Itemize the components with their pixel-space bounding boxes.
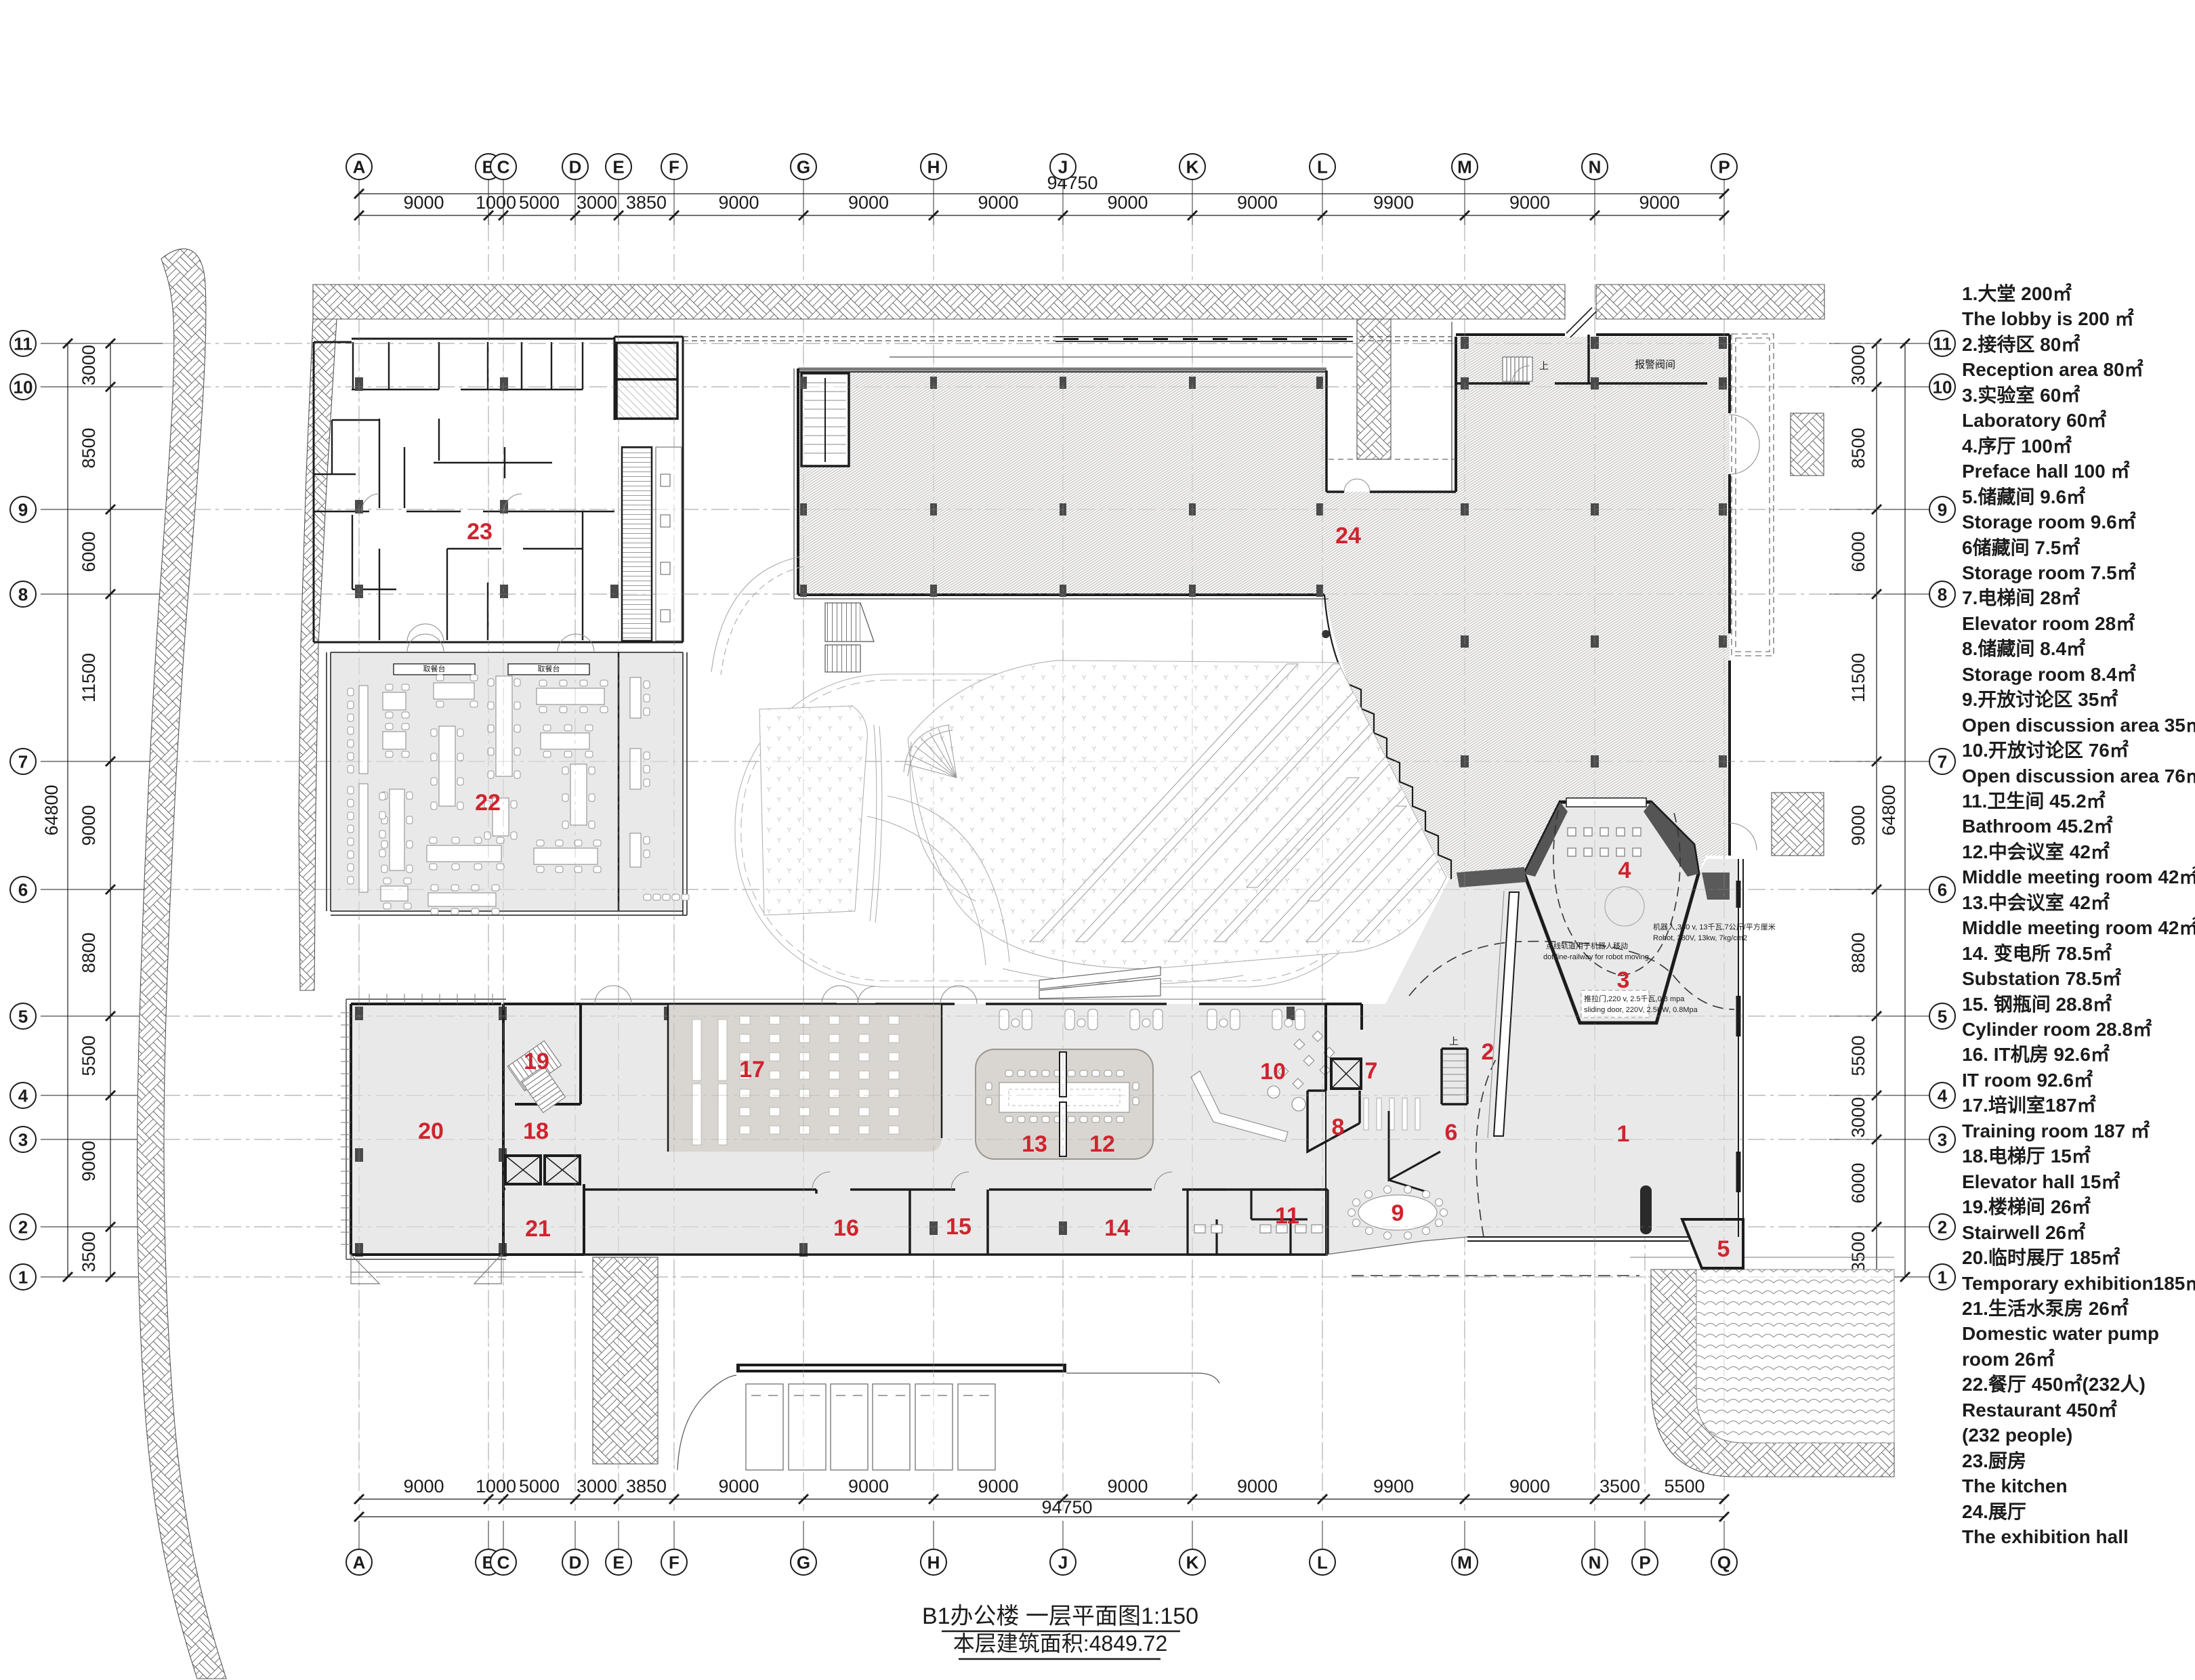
svg-text:9: 9 [1392,1200,1404,1226]
svg-text:64800: 64800 [1879,784,1899,835]
svg-text:Middle meeting room 42㎡: Middle meeting room 42㎡ [1962,866,2195,887]
svg-text:5500: 5500 [1848,1035,1868,1076]
svg-text:9: 9 [1938,499,1947,520]
svg-text:6: 6 [18,879,28,900]
svg-text:5: 5 [18,1006,28,1026]
svg-text:7: 7 [1938,751,1947,772]
svg-text:11: 11 [1933,333,1952,354]
svg-text:13: 13 [1022,1131,1047,1157]
svg-text:M: M [1457,156,1472,177]
svg-text:本层建筑面积:4849.72: 本层建筑面积:4849.72 [953,1631,1168,1656]
svg-text:The lobby is 200 ㎡: The lobby is 200 ㎡ [1962,308,2134,329]
svg-text:18: 18 [523,1118,549,1144]
svg-text:9000: 9000 [79,1141,99,1181]
svg-text:4: 4 [1618,858,1631,883]
svg-text:20.临时展厅 185㎡: 20.临时展厅 185㎡ [1962,1246,2120,1268]
svg-text:17.培训室187㎡: 17.培训室187㎡ [1962,1094,2096,1116]
svg-text:2: 2 [18,1217,28,1237]
svg-text:11.卫生间 45.2㎡: 11.卫生间 45.2㎡ [1962,790,2106,812]
svg-text:2: 2 [1938,1217,1947,1237]
svg-text:K: K [1186,1552,1199,1572]
svg-text:J: J [1058,1552,1068,1572]
svg-text:A: A [353,156,366,177]
svg-text:14: 14 [1104,1215,1130,1241]
svg-text:Storage room 9.6㎡: Storage room 9.6㎡ [1962,511,2136,532]
svg-text:14. 变电所 78.5㎡: 14. 变电所 78.5㎡ [1962,942,2112,964]
svg-text:3000: 3000 [1848,1097,1868,1137]
svg-text:10: 10 [1933,377,1952,397]
svg-text:1000: 1000 [476,192,516,213]
svg-text:F: F [669,156,680,177]
svg-text:Training room 187 ㎡: Training room 187 ㎡ [1962,1120,2150,1141]
svg-text:8: 8 [1332,1114,1345,1140]
svg-text:9000: 9000 [848,192,889,213]
svg-text:Substation 78.5㎡: Substation 78.5㎡ [1962,967,2121,989]
svg-text:18.电梯厅 15㎡: 18.电梯厅 15㎡ [1962,1145,2091,1167]
svg-text:8: 8 [18,584,28,604]
svg-text:8.储藏间 8.4㎡: 8.储藏间 8.4㎡ [1962,637,2085,659]
svg-text:3000: 3000 [577,1476,617,1496]
svg-text:3500: 3500 [79,1232,99,1272]
svg-text:Elevator room 28㎡: Elevator room 28㎡ [1962,612,2135,634]
svg-text:The exhibition hall: The exhibition hall [1962,1526,2129,1547]
svg-text:Preface hall 100 ㎡: Preface hall 100 ㎡ [1962,460,2129,482]
svg-text:9000: 9000 [1848,805,1868,845]
svg-text:12.中会议室 42㎡: 12.中会议室 42㎡ [1962,841,2110,862]
svg-text:9000: 9000 [1107,1476,1148,1496]
svg-text:11500: 11500 [79,653,99,702]
svg-text:Storage room 8.4㎡: Storage room 8.4㎡ [1962,663,2136,685]
svg-text:K: K [1186,156,1199,177]
svg-text:F: F [669,1552,680,1572]
svg-text:19.楼梯间 26㎡: 19.楼梯间 26㎡ [1962,1196,2091,1217]
svg-text:9.开放讨论区 35㎡: 9.开放讨论区 35㎡ [1962,688,2118,710]
svg-text:16: 16 [833,1215,859,1241]
svg-text:D: D [569,156,582,177]
svg-text:Elevator hall 15㎡: Elevator hall 15㎡ [1962,1171,2120,1192]
svg-text:3500: 3500 [1848,1232,1868,1272]
svg-text:3000: 3000 [577,192,617,213]
svg-text:9000: 9000 [718,1476,759,1496]
svg-text:9000: 9000 [1237,1476,1278,1496]
svg-text:8500: 8500 [79,427,99,468]
svg-text:6000: 6000 [79,531,99,572]
svg-text:3500: 3500 [1600,1476,1640,1496]
svg-text:5500: 5500 [79,1035,99,1076]
svg-text:5: 5 [1938,1006,1947,1026]
svg-text:8500: 8500 [1848,427,1868,468]
svg-text:23.厨房: 23.厨房 [1962,1450,2026,1471]
svg-text:Bathroom 45.2㎡: Bathroom 45.2㎡ [1962,815,2113,837]
svg-text:4.序厅 100㎡: 4.序厅 100㎡ [1962,435,2072,457]
svg-text:Storage room 7.5㎡: Storage room 7.5㎡ [1962,562,2136,583]
svg-text:3: 3 [1938,1129,1947,1150]
svg-text:9000: 9000 [1509,192,1550,213]
svg-text:Cylinder room 28.8㎡: Cylinder room 28.8㎡ [1962,1018,2152,1040]
svg-text:Open discussion area 35㎡: Open discussion area 35㎡ [1962,714,2195,736]
svg-text:C: C [497,1552,510,1572]
svg-text:3000: 3000 [79,345,99,385]
svg-text:10: 10 [14,377,33,397]
svg-text:G: G [797,156,810,177]
svg-text:21.生活水泵房 26㎡: 21.生活水泵房 26㎡ [1962,1297,2129,1319]
svg-text:Reception area 80㎡: Reception area 80㎡ [1962,358,2144,380]
svg-text:20: 20 [418,1118,444,1144]
svg-text:9000: 9000 [848,1476,889,1496]
svg-text:1000: 1000 [476,1476,516,1496]
svg-text:4: 4 [1938,1085,1948,1106]
svg-text:取餐台: 取餐台 [423,664,446,673]
svg-text:4: 4 [18,1085,28,1106]
svg-text:64800: 64800 [41,784,62,835]
svg-text:9000: 9000 [403,192,444,213]
svg-text:Middle meeting room 42㎡: Middle meeting room 42㎡ [1962,917,2195,938]
svg-text:15. 钢瓶间 28.8㎡: 15. 钢瓶间 28.8㎡ [1962,993,2112,1015]
svg-text:13.中会议室 42㎡: 13.中会议室 42㎡ [1962,891,2110,913]
svg-text:24.展厅: 24.展厅 [1962,1501,2026,1522]
svg-text:9000: 9000 [79,805,99,845]
svg-text:D: D [569,1552,582,1572]
svg-text:5000: 5000 [519,1476,560,1496]
svg-text:2: 2 [1482,1039,1494,1065]
svg-text:11500: 11500 [1848,653,1868,702]
svg-text:19: 19 [524,1049,549,1074]
svg-text:C: C [497,156,510,177]
svg-text:Robot, 380V, 13kw, 7kg/cm2: Robot, 380V, 13kw, 7kg/cm2 [1653,934,1747,942]
svg-text:3: 3 [1617,967,1630,993]
svg-text:6储藏间 7.5㎡: 6储藏间 7.5㎡ [1962,537,2080,558]
svg-text:5: 5 [1717,1236,1730,1262]
svg-text:P: P [1718,156,1730,177]
svg-text:1: 1 [1938,1267,1947,1287]
svg-text:7: 7 [1365,1058,1378,1084]
svg-text:9900: 9900 [1373,1476,1414,1496]
svg-text:8: 8 [1938,584,1947,604]
svg-text:room 26㎡: room 26㎡ [1962,1348,2055,1370]
svg-text:L: L [1317,156,1328,177]
svg-text:报警阀间: 报警阀间 [1635,359,1675,371]
svg-text:G: G [797,1552,810,1572]
svg-text:上: 上 [1539,360,1549,371]
svg-text:点线轨道用于机器人移动: 点线轨道用于机器人移动 [1546,941,1628,950]
svg-text:5500: 5500 [1664,1476,1705,1496]
svg-text:L: L [1317,1552,1328,1572]
svg-text:1.大堂 200㎡: 1.大堂 200㎡ [1962,282,2072,304]
svg-text:9000: 9000 [1107,192,1148,213]
svg-text:Domestic water pump: Domestic water pump [1962,1323,2159,1344]
svg-text:11: 11 [14,333,33,354]
svg-text:5.储藏间 9.6㎡: 5.储藏间 9.6㎡ [1962,486,2085,507]
svg-text:3000: 3000 [1848,345,1868,385]
svg-text:3.实验室 60㎡: 3.实验室 60㎡ [1962,384,2080,406]
svg-text:Laboratory 60㎡: Laboratory 60㎡ [1962,409,2106,431]
svg-text:The kitchen: The kitchen [1962,1475,2068,1496]
svg-text:(232 people): (232 people) [1962,1425,2072,1446]
svg-text:机器人,380 v, 13千瓦,7公斤/平方厘米: 机器人,380 v, 13千瓦,7公斤/平方厘米 [1653,922,1776,931]
svg-text:9900: 9900 [1373,192,1414,213]
svg-text:取餐台: 取餐台 [538,664,560,673]
svg-text:1: 1 [1617,1121,1630,1147]
svg-text:9000: 9000 [403,1476,444,1496]
svg-text:6: 6 [1445,1120,1458,1146]
svg-text:E: E [612,156,624,177]
svg-text:9000: 9000 [978,1476,1018,1496]
svg-text:dot line-railway for robot mov: dot line-railway for robot moving [1543,953,1649,961]
svg-text:3: 3 [18,1129,28,1150]
svg-text:17: 17 [739,1057,765,1083]
svg-text:M: M [1457,1552,1472,1572]
svg-text:9000: 9000 [718,192,759,213]
svg-text:16. IT机房 92.6㎡: 16. IT机房 92.6㎡ [1962,1043,2110,1065]
svg-text:Temporary exhibition185㎡: Temporary exhibition185㎡ [1962,1272,2195,1294]
svg-text:推拉门,220 v, 2.5千瓦,0.8 mpa: 推拉门,220 v, 2.5千瓦,0.8 mpa [1584,994,1685,1003]
svg-text:J: J [1058,156,1068,177]
svg-text:Q: Q [1717,1552,1731,1572]
svg-text:8800: 8800 [79,932,99,973]
svg-text:sliding door, 220V, 2.5KW, 0.8: sliding door, 220V, 2.5KW, 0.8Mpa [1584,1006,1698,1014]
svg-text:E: E [612,1552,624,1572]
svg-text:22: 22 [475,790,501,816]
svg-text:9000: 9000 [1639,192,1679,213]
svg-text:N: N [1589,156,1602,177]
svg-text:N: N [1589,1552,1602,1572]
svg-text:Stairwell 26㎡: Stairwell 26㎡ [1962,1221,2085,1243]
svg-text:上: 上 [1449,1036,1459,1047]
svg-text:24: 24 [1335,523,1361,549]
svg-text:11: 11 [1275,1203,1299,1229]
svg-text:21: 21 [525,1216,551,1242]
svg-text:9000: 9000 [1509,1476,1550,1496]
svg-text:8800: 8800 [1848,932,1868,973]
svg-text:3850: 3850 [626,192,667,213]
svg-text:5000: 5000 [519,192,560,213]
svg-text:7.电梯间 28㎡: 7.电梯间 28㎡ [1962,587,2080,608]
svg-text:2.接待区 80㎡: 2.接待区 80㎡ [1962,333,2080,355]
svg-text:10.开放讨论区 76㎡: 10.开放讨论区 76㎡ [1962,739,2129,761]
svg-text:H: H [927,1552,940,1572]
svg-text:6000: 6000 [1848,1162,1868,1203]
svg-text:10: 10 [1260,1059,1286,1085]
svg-text:Open discussion area 76㎡: Open discussion area 76㎡ [1962,765,2195,786]
svg-text:1: 1 [18,1267,28,1287]
svg-text:6: 6 [1938,879,1947,900]
svg-text:12: 12 [1089,1131,1115,1157]
svg-text:6000: 6000 [1848,531,1868,572]
svg-text:B1办公楼 一层平面图1:150: B1办公楼 一层平面图1:150 [922,1603,1198,1629]
svg-text:9: 9 [18,499,28,520]
svg-text:22.餐厅 450㎡(232人): 22.餐厅 450㎡(232人) [1962,1373,2146,1395]
svg-text:H: H [927,156,940,177]
svg-text:P: P [1639,1552,1650,1572]
svg-text:IT room 92.6㎡: IT room 92.6㎡ [1962,1069,2093,1091]
svg-text:7: 7 [18,751,28,772]
svg-text:Restaurant 450㎡: Restaurant 450㎡ [1962,1399,2117,1421]
svg-text:9000: 9000 [1237,192,1278,213]
svg-text:3850: 3850 [626,1476,667,1496]
svg-text:A: A [353,1552,366,1572]
svg-text:94750: 94750 [1041,1497,1092,1517]
svg-text:9000: 9000 [978,192,1018,213]
